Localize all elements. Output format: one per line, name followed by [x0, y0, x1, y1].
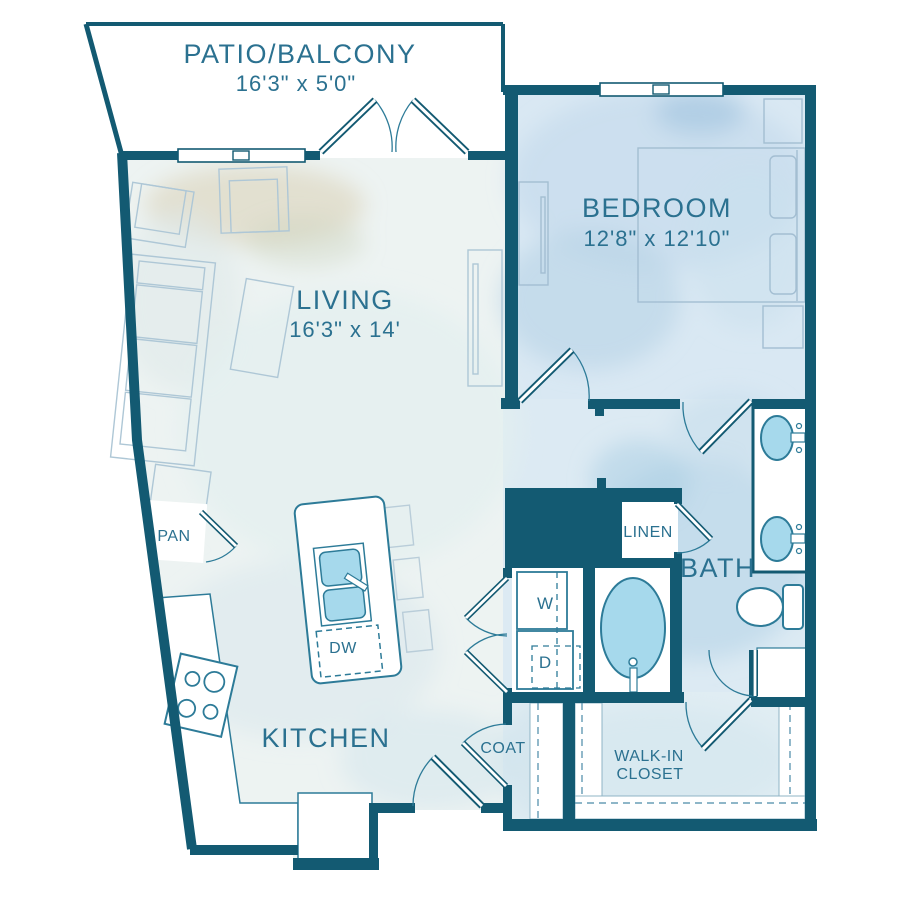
floor-plan-svg: PATIO/BALCONY 16'3" x 5'0" BEDROOM 12'8"… — [0, 0, 900, 900]
tub-room — [593, 566, 672, 700]
walkin-label-line2: CLOSET — [616, 766, 683, 783]
coat-label: COAT — [480, 740, 525, 757]
patio-dims: 16'3" x 5'0" — [236, 71, 356, 96]
living-bedroom-wall — [505, 95, 518, 401]
linen-label: LINEN — [623, 524, 673, 541]
walkin-label-line1: WALK-IN — [614, 748, 684, 765]
sink-faucet — [791, 534, 805, 543]
living-window — [178, 149, 305, 162]
living-dims: 16'3" x 14' — [289, 317, 401, 342]
kitchen-label: KITCHEN — [261, 723, 390, 753]
bath-vanity — [753, 402, 809, 572]
tub-drain — [629, 658, 637, 666]
laundry-closet — [512, 568, 583, 698]
tub-pipe — [630, 668, 637, 692]
bedroom-label: BEDROOM — [582, 193, 732, 223]
pantry-label: PAN — [157, 528, 190, 545]
washer-label: W — [537, 594, 553, 613]
dryer-label: D — [539, 653, 551, 672]
plumbing-chase — [505, 488, 622, 568]
sink-faucet — [791, 433, 805, 442]
dishwasher-label: DW — [329, 640, 357, 657]
vanity-sink — [761, 416, 793, 460]
bath-door-niche — [757, 648, 807, 698]
bath-label: BATH — [680, 553, 756, 583]
utility-box — [298, 793, 372, 861]
bedroom-dims: 12'8" x 12'10" — [584, 226, 731, 251]
bedroom-window — [600, 83, 723, 96]
toilet — [737, 585, 803, 629]
exterior-wall-right — [805, 85, 816, 830]
vanity-sink — [761, 517, 793, 561]
living-label: LIVING — [296, 285, 394, 315]
exterior-wall-bottom — [503, 819, 817, 831]
coat-closet-shelving — [530, 703, 563, 819]
floor-plan-page: PATIO/BALCONY 16'3" x 5'0" BEDROOM 12'8"… — [0, 0, 900, 900]
patio-label: PATIO/BALCONY — [183, 39, 416, 69]
sink-basin — [323, 586, 366, 621]
